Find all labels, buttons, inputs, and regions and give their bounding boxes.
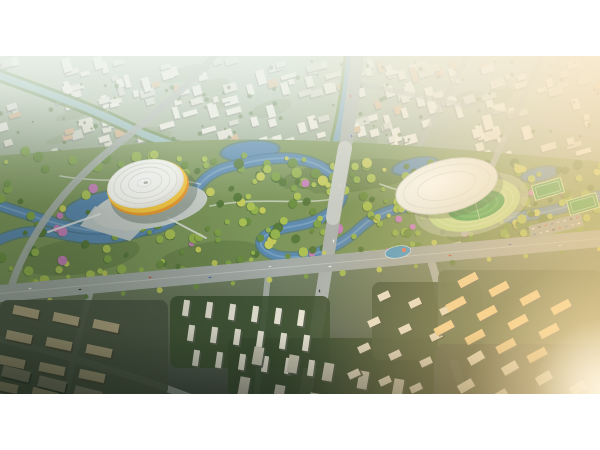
letterbox-bottom xyxy=(0,394,600,450)
page-canvas xyxy=(0,0,600,450)
scene-svg xyxy=(0,56,600,394)
light-overlays xyxy=(0,56,600,394)
letterbox-top xyxy=(0,0,600,56)
aerial-masterplan-render xyxy=(0,56,600,394)
sun-glow-core xyxy=(0,56,600,394)
